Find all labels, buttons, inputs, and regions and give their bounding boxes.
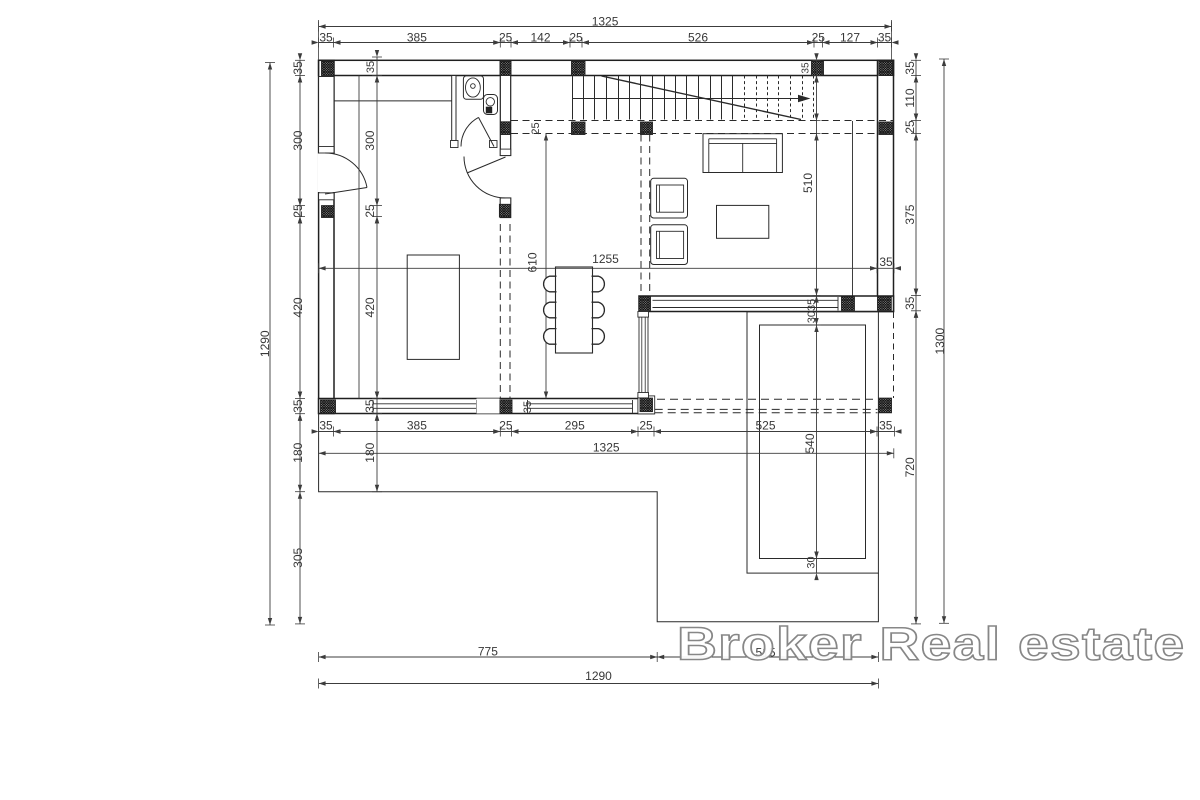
svg-text:35: 35	[291, 61, 305, 75]
svg-text:510: 510	[801, 173, 815, 193]
svg-text:35: 35	[319, 31, 333, 45]
svg-text:295: 295	[565, 419, 585, 433]
svg-text:25: 25	[499, 419, 513, 433]
svg-text:305: 305	[291, 547, 305, 567]
svg-text:180: 180	[291, 442, 305, 462]
svg-text:30: 30	[806, 556, 818, 568]
svg-text:35: 35	[903, 296, 917, 310]
svg-text:1300: 1300	[933, 327, 947, 354]
svg-text:420: 420	[363, 297, 377, 317]
svg-text:35: 35	[522, 401, 534, 413]
svg-text:25: 25	[569, 31, 583, 45]
svg-text:526: 526	[688, 31, 708, 45]
svg-text:525: 525	[755, 419, 775, 433]
svg-text:25: 25	[903, 120, 917, 134]
svg-text:180: 180	[363, 442, 377, 462]
svg-text:127: 127	[840, 31, 860, 45]
svg-text:3035: 3035	[806, 299, 818, 323]
svg-text:35: 35	[365, 61, 377, 73]
svg-text:1325: 1325	[593, 440, 620, 454]
svg-text:1325: 1325	[592, 15, 619, 29]
svg-text:142: 142	[530, 31, 550, 45]
svg-text:385: 385	[407, 31, 427, 45]
svg-text:540: 540	[803, 433, 817, 453]
svg-text:300: 300	[363, 130, 377, 150]
svg-text:35: 35	[879, 419, 893, 433]
svg-text:110: 110	[903, 88, 917, 107]
svg-text:35: 35	[903, 61, 917, 75]
svg-text:25: 25	[530, 122, 542, 134]
svg-text:25: 25	[639, 419, 653, 433]
svg-text:35: 35	[879, 255, 893, 269]
svg-text:25: 25	[499, 31, 513, 45]
svg-text:610: 610	[526, 252, 540, 272]
svg-text:420: 420	[291, 297, 305, 317]
svg-text:Broker Real estate: Broker Real estate	[677, 618, 1185, 670]
svg-text:300: 300	[291, 130, 305, 150]
svg-text:35: 35	[801, 62, 812, 74]
svg-text:35: 35	[878, 31, 892, 45]
svg-text:375: 375	[903, 204, 917, 224]
svg-text:1290: 1290	[258, 330, 272, 357]
svg-text:385: 385	[407, 419, 427, 433]
svg-text:1290: 1290	[585, 669, 612, 683]
svg-text:720: 720	[903, 457, 917, 477]
svg-text:35: 35	[319, 419, 333, 433]
svg-text:35: 35	[363, 399, 377, 413]
svg-text:1255: 1255	[592, 252, 619, 266]
svg-text:35: 35	[291, 399, 305, 413]
svg-text:25: 25	[363, 204, 377, 218]
svg-text:25: 25	[291, 204, 305, 218]
svg-text:775: 775	[478, 645, 498, 659]
